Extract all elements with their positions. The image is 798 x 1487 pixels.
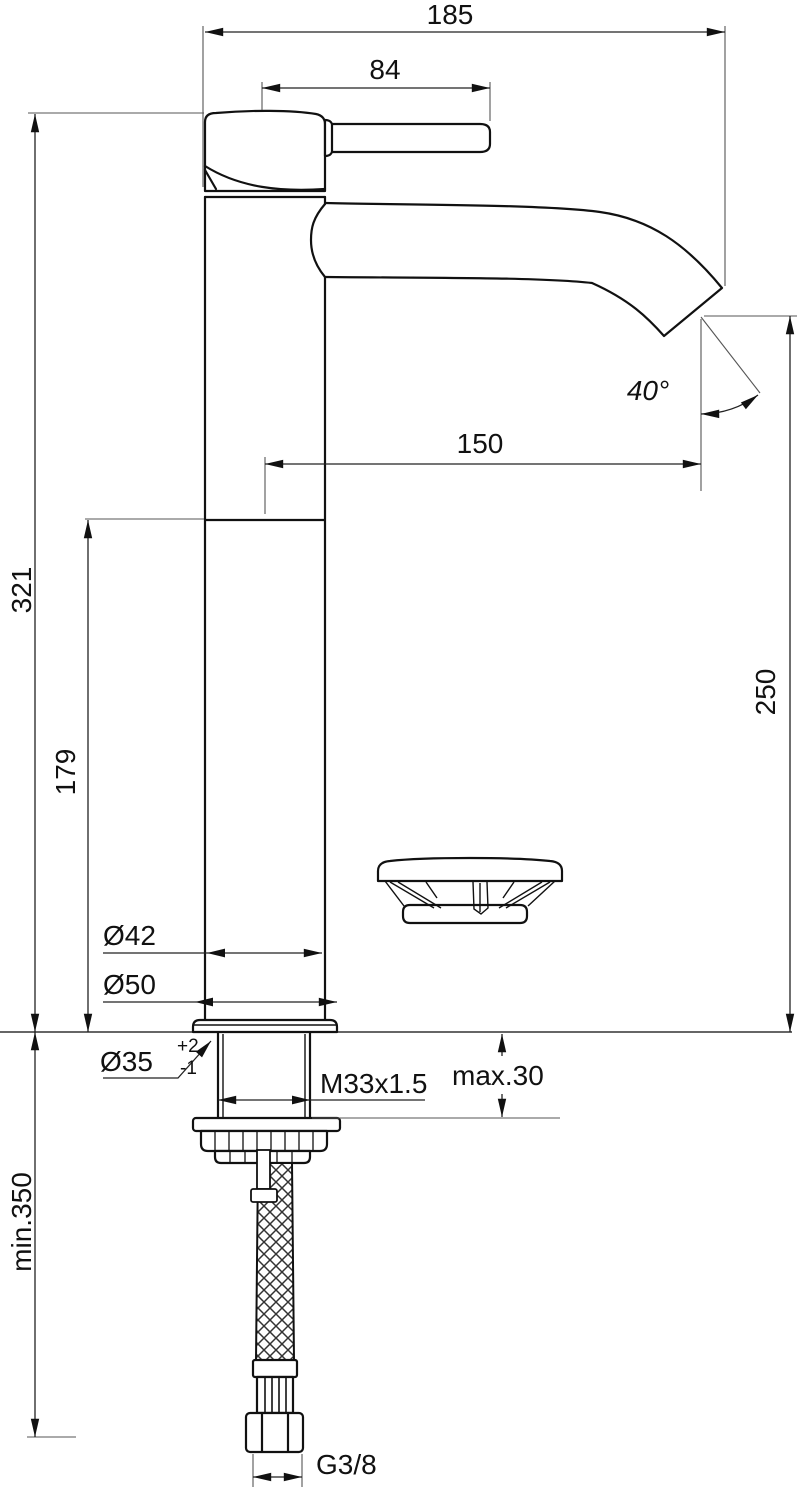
dim-thread: M33x1.5 [218, 1068, 427, 1104]
dim-hose-connection-label: G3/8 [316, 1449, 377, 1480]
handle-lever [332, 124, 490, 152]
pop-up-rod [257, 1150, 270, 1189]
dim-hose-connection: G3/8 [253, 1449, 377, 1487]
dim-hose-clearance: min.350 [6, 1032, 76, 1437]
dim-lower-body-height-label: 179 [50, 749, 81, 796]
base-flange [193, 1020, 337, 1032]
dim-base-diameter: Ø50 [103, 969, 337, 1006]
dim-hole-diameter-label: Ø35 [100, 1046, 153, 1077]
dim-body-diameter-label: Ø42 [103, 920, 156, 951]
hose-hex-nut [246, 1413, 303, 1452]
mounting-hardware [193, 1033, 340, 1163]
dim-total-height: 321 [6, 113, 204, 1032]
dim-deck-thickness-label: max.30 [452, 1060, 544, 1091]
dim-hole-tol-minus: -1 [180, 1058, 197, 1079]
pop-up-plug [378, 858, 562, 923]
faucet-dimension-drawing: 185 84 40° 150 321 179 250 [0, 0, 798, 1487]
pop-up-rod-collar [251, 1189, 277, 1202]
dim-outlet-height: 250 [750, 316, 790, 1032]
mounting-nut-flange [193, 1118, 340, 1131]
mounting-nut-body [201, 1131, 327, 1151]
hose-ferrule [253, 1360, 297, 1377]
dim-spout-angle: 40° [627, 316, 797, 491]
dim-handle-length-label: 84 [369, 54, 400, 85]
dim-hole-diameter: Ø35 +2 -1 [100, 1036, 211, 1079]
dim-spout-angle-label: 40° [627, 375, 669, 406]
spout [326, 203, 722, 336]
dim-total-height-label: 321 [6, 567, 37, 614]
dim-thread-label: M33x1.5 [320, 1068, 427, 1099]
dim-body-diameter: Ø42 [103, 920, 322, 957]
faucet-outline [193, 111, 722, 1032]
dim-spout-reach: 150 [265, 428, 701, 514]
spout-fillet [311, 204, 325, 277]
supply-hose [246, 1150, 303, 1452]
dim-overall-width-label: 185 [427, 0, 474, 30]
dim-hose-clearance-label: min.350 [6, 1172, 37, 1272]
dim-lower-body-height: 179 [50, 519, 204, 1032]
hose-connector [257, 1377, 293, 1413]
dim-outlet-height-label: 250 [750, 669, 781, 716]
technical-drawing-canvas: 185 84 40° 150 321 179 250 [0, 0, 798, 1487]
handle-cap [205, 111, 325, 191]
dim-hole-tol-plus: +2 [177, 1036, 199, 1057]
plug-cap [378, 858, 562, 881]
dim-base-diameter-label: Ø50 [103, 969, 156, 1000]
plug-base [403, 905, 527, 923]
dim-spout-reach-label: 150 [457, 428, 504, 459]
